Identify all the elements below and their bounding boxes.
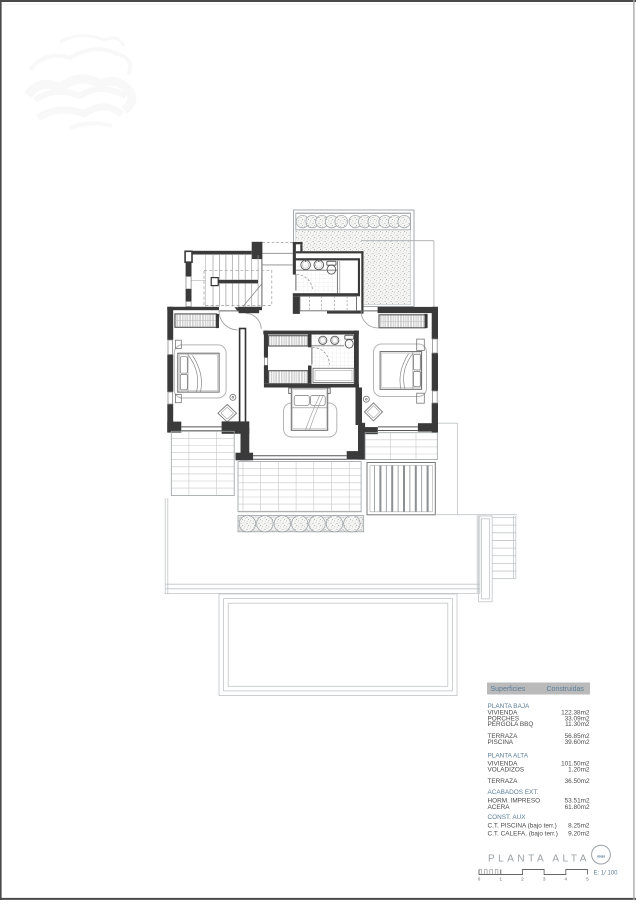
svg-text:PERGOLA BBQ: PERGOLA BBQ xyxy=(488,721,534,728)
svg-text:Construidas: Construidas xyxy=(547,686,585,693)
svg-text:5: 5 xyxy=(586,877,589,882)
svg-text:C.T. CALEFA. (bajo terr.): C.T. CALEFA. (bajo terr.) xyxy=(488,830,558,837)
svg-text:PLANTA ALTA: PLANTA ALTA xyxy=(488,854,590,865)
svg-text:11.30m2: 11.30m2 xyxy=(565,721,590,728)
svg-text:PISCINA: PISCINA xyxy=(488,739,514,746)
svg-text:61.80m2: 61.80m2 xyxy=(565,804,590,811)
svg-text:Superficies: Superficies xyxy=(491,686,526,693)
svg-text:mias: mias xyxy=(597,855,605,859)
svg-text:8.25m2: 8.25m2 xyxy=(568,823,590,830)
svg-text:1.20m2: 1.20m2 xyxy=(568,766,590,773)
svg-text:2: 2 xyxy=(521,877,524,882)
svg-text:ACABADOS EXT.: ACABADOS EXT. xyxy=(488,789,539,796)
svg-text:9.20m2: 9.20m2 xyxy=(568,830,590,837)
svg-text:0: 0 xyxy=(478,877,481,882)
svg-text:CONST. AUX: CONST. AUX xyxy=(488,814,527,821)
svg-text:39.60m2: 39.60m2 xyxy=(565,739,590,746)
svg-text:VOLADIZOS: VOLADIZOS xyxy=(488,766,525,773)
svg-text:36.50m2: 36.50m2 xyxy=(565,778,590,785)
svg-text:3: 3 xyxy=(543,877,546,882)
svg-text:TERRAZA: TERRAZA xyxy=(488,778,519,785)
svg-text:1: 1 xyxy=(500,877,503,882)
svg-text:PLANTA ALTA: PLANTA ALTA xyxy=(488,753,529,760)
svg-text:E: 1/ 100: E: 1/ 100 xyxy=(594,871,619,877)
svg-text:ACERA: ACERA xyxy=(488,804,511,811)
svg-text:4: 4 xyxy=(565,877,568,882)
svg-text:C.T. PISCINA (bajo terr.): C.T. PISCINA (bajo terr.) xyxy=(488,823,557,830)
